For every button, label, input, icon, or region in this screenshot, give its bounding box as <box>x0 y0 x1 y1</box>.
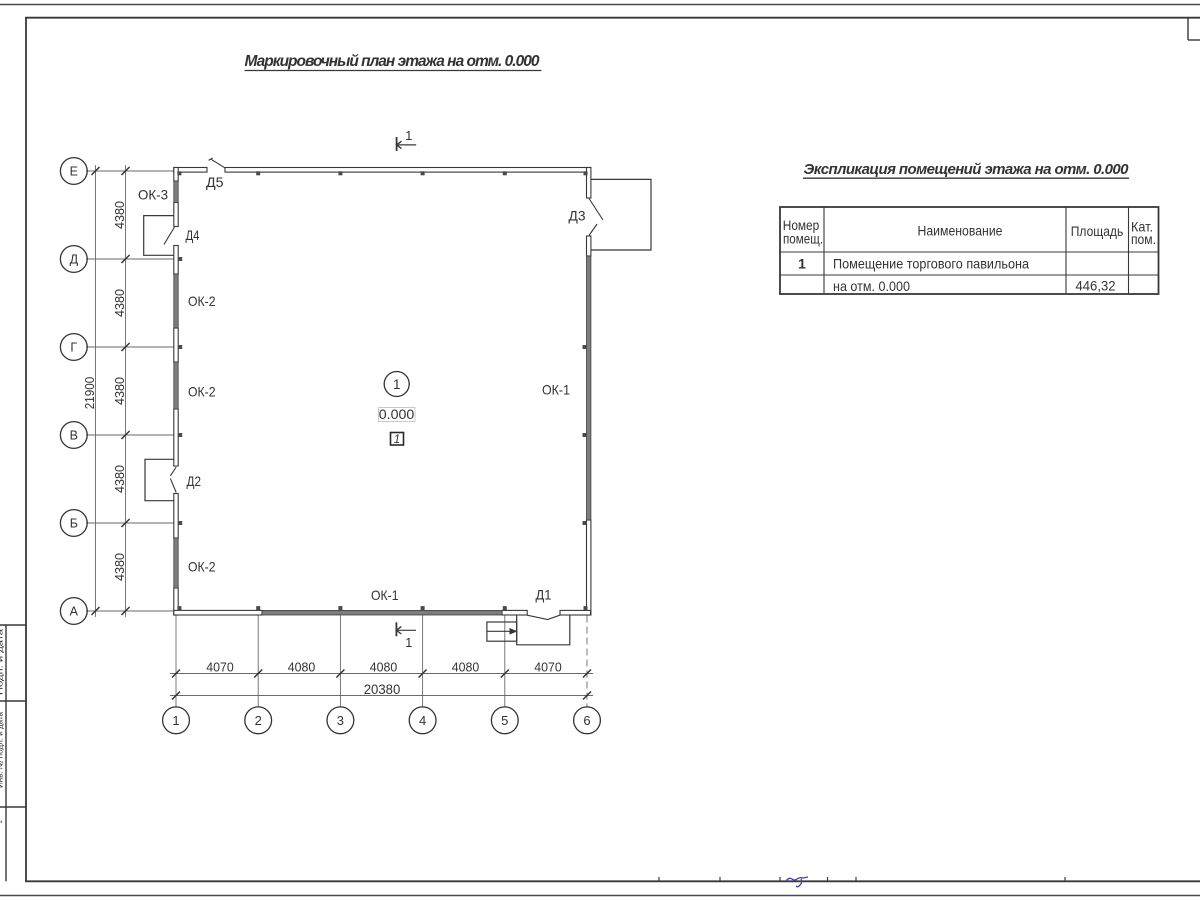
svg-text:ОК-2: ОК-2 <box>188 293 216 309</box>
svg-text:1: 1 <box>393 377 401 392</box>
svg-text:Наименование: Наименование <box>918 223 1003 239</box>
svg-text:4380: 4380 <box>112 465 127 493</box>
svg-text:2: 2 <box>255 713 262 728</box>
svg-text:1: 1 <box>405 128 412 143</box>
svg-text:4070: 4070 <box>206 660 234 674</box>
svg-text:Экспликация помещений этажа на: Экспликация помещений этажа на отм. 0.00… <box>804 161 1130 178</box>
svg-text:Инв. № подл. и дата: Инв. № подл. и дата <box>0 711 4 788</box>
svg-text:4080: 4080 <box>370 660 398 674</box>
svg-text:Подп. и дата: Подп. и дата <box>0 628 4 695</box>
svg-text:Д5: Д5 <box>206 174 224 190</box>
svg-text:4380: 4380 <box>112 377 127 405</box>
svg-text:20380: 20380 <box>364 682 401 697</box>
svg-text:1: 1 <box>172 713 179 728</box>
svg-text:Площадь: Площадь <box>1071 223 1124 239</box>
svg-text:ОК-1: ОК-1 <box>371 587 399 603</box>
svg-text:на отм. 0.000: на отм. 0.000 <box>833 278 910 294</box>
svg-text:Б: Б <box>70 516 78 530</box>
svg-text:5: 5 <box>501 713 508 728</box>
svg-text:ОК-2: ОК-2 <box>188 384 216 400</box>
svg-text:ОК-3: ОК-3 <box>138 187 168 203</box>
svg-text:3: 3 <box>337 713 344 728</box>
svg-text:4380: 4380 <box>112 201 127 229</box>
svg-text:1: 1 <box>405 635 412 650</box>
svg-text:Д3: Д3 <box>569 208 586 224</box>
svg-text:4380: 4380 <box>112 289 127 317</box>
svg-text:пом.: пом. <box>1131 231 1156 247</box>
svg-text:1: 1 <box>394 434 400 446</box>
svg-text:Д2: Д2 <box>187 473 202 489</box>
svg-text:Д1: Д1 <box>536 587 552 603</box>
svg-text:4080: 4080 <box>288 660 316 674</box>
svg-text:Г: Г <box>70 340 77 354</box>
svg-text:Маркировочный план этажа на от: Маркировочный план этажа на отм. 0.000 <box>245 53 540 70</box>
svg-text:Д4: Д4 <box>186 227 200 243</box>
svg-text:помещ.: помещ. <box>783 231 823 247</box>
svg-text:4380: 4380 <box>112 553 127 581</box>
svg-text:21900: 21900 <box>82 377 97 410</box>
svg-text:Д: Д <box>70 252 79 266</box>
svg-text:Помещение торгового павильона: Помещение торгового павильона <box>833 256 1029 272</box>
svg-text:Е: Е <box>70 164 78 178</box>
svg-text:В: В <box>70 428 78 442</box>
svg-text:А: А <box>70 604 79 618</box>
svg-text:4080: 4080 <box>452 660 480 674</box>
svg-text:6: 6 <box>583 713 590 728</box>
svg-text:0.000: 0.000 <box>379 407 415 422</box>
svg-text:ОК-1: ОК-1 <box>542 382 570 398</box>
svg-text:1: 1 <box>798 256 806 272</box>
svg-text:4: 4 <box>419 713 426 728</box>
svg-text:ОК-2: ОК-2 <box>188 559 216 575</box>
svg-text:4070: 4070 <box>534 660 562 674</box>
svg-text:446,32: 446,32 <box>1076 278 1116 294</box>
